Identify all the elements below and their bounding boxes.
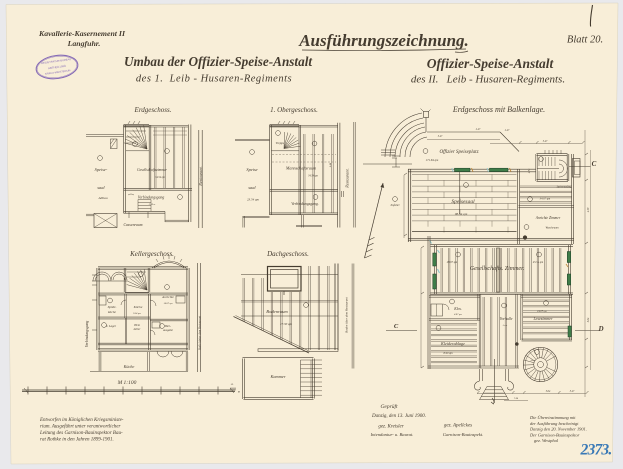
svg-text:Geprüft: Geprüft [380, 403, 398, 410]
svg-text:Kellergeschoss.: Kellergeschoss. [129, 250, 174, 258]
svg-text:Lesezimmer: Lesezimmer [532, 316, 553, 321]
svg-text:9.54 qm: 9.54 qm [133, 312, 141, 315]
svg-text:23.54 qm: 23.54 qm [247, 198, 260, 202]
svg-text:D: D [597, 325, 603, 333]
svg-text:Anrichte: Anrichte [161, 295, 174, 299]
svg-text:Küche: Küche [133, 305, 143, 309]
svg-text:Danzig den 20. November 1901.: Danzig den 20. November 1901. [529, 427, 587, 432]
svg-text:1. Obergeschoss.: 1. Obergeschoss. [270, 106, 318, 114]
svg-text:4.07 qm: 4.07 qm [454, 313, 462, 316]
svg-text:keller: keller [134, 327, 142, 331]
svg-text:Boden über dem Restaurant: Boden über dem Restaurant [345, 297, 349, 333]
svg-text:Garnison-Bauinspekt.: Garnison-Bauinspekt. [443, 432, 483, 437]
svg-text:Kammer: Kammer [269, 374, 285, 379]
svg-text:Restaurant.: Restaurant. [345, 168, 350, 188]
svg-text:2.47: 2.47 [505, 129, 510, 132]
svg-text:Altbau: Altbau [97, 196, 107, 200]
svg-text:Vorhalle: Vorhalle [500, 317, 513, 321]
svg-text:Cassenraum: Cassenraum [124, 223, 143, 227]
svg-text:5.47: 5.47 [438, 135, 443, 138]
svg-text:Danzig, den 13. Juni 1900.: Danzig, den 13. Juni 1900. [371, 414, 426, 419]
svg-text:Speise: Speise [246, 167, 257, 172]
svg-text:gez. Kreisler: gez. Kreisler [378, 425, 403, 430]
svg-text:28.07 qm: 28.07 qm [447, 261, 457, 264]
svg-text:der Ausführung bescheinigt: der Ausführung bescheinigt [530, 421, 579, 426]
svg-text:Ausführungszeichnung.: Ausführungszeichnung. [298, 31, 469, 50]
svg-text:5.47: 5.47 [543, 140, 548, 143]
svg-text:Verbindungsgang.: Verbindungsgang. [291, 202, 319, 206]
svg-text:10.: 10. [231, 383, 234, 386]
svg-text:Küche: Küche [123, 364, 135, 369]
svg-text:M 1:100: M 1:100 [117, 380, 137, 386]
svg-text:3.64: 3.64 [587, 317, 590, 322]
svg-text:des 1. Leib - Husaren-Regimen: des 1. Leib - Husaren-Regiments [136, 74, 292, 85]
svg-text:Offizier-Speise-Anstalt: Offizier-Speise-Anstalt [427, 56, 555, 71]
svg-text:34.54 qm: 34.54 qm [308, 175, 318, 178]
svg-text:Kavallerie-Kasernement II: Kavallerie-Kasernement II [38, 29, 126, 38]
svg-text:Erdgeschoss mit Balkenlage.: Erdgeschoss mit Balkenlage. [452, 105, 545, 114]
svg-text:8.90 qm: 8.90 qm [443, 352, 452, 355]
svg-text:Leitung des Garnison-Bauinspek: Leitung des Garnison-Bauinspektor Bau- [39, 431, 123, 436]
svg-text:Verbindungsgang: Verbindungsgang [85, 321, 89, 348]
svg-text:Halle hinter dem Restaurant: Halle hinter dem Restaurant [198, 316, 202, 351]
svg-text:Anrichte Zimmer: Anrichte Zimmer [535, 216, 561, 220]
svg-text:Restaurant.: Restaurant. [198, 166, 203, 186]
svg-text:4. Lager: 4. Lager [106, 324, 117, 328]
svg-text:17.30 qm: 17.30 qm [280, 322, 293, 326]
svg-text:saal: saal [248, 185, 256, 190]
svg-text:Gesellschafts. Zimmer.: Gesellschafts. Zimmer. [470, 265, 525, 272]
svg-text:14.07 qm: 14.07 qm [164, 302, 173, 305]
svg-text:Umbau der Offizier-Speise-Anst: Umbau der Offizier-Speise-Anstalt [124, 54, 312, 69]
svg-text:Der Garnison-Bauinspektor: Der Garnison-Bauinspektor [529, 432, 580, 437]
svg-text:Waschraum: Waschraum [545, 227, 558, 230]
svg-text:45.54 qm: 45.54 qm [533, 261, 543, 264]
svg-text:des II. Leib - Husaren-Regi: des II. Leib - Husaren-Regiments. [411, 74, 565, 86]
svg-text:saal: saal [97, 185, 105, 190]
svg-text:gez. Westphal: gez. Westphal [534, 438, 559, 443]
svg-text:Speisenaufzug: Speisenaufzug [557, 186, 573, 189]
svg-text:ausgabe: ausgabe [163, 328, 174, 332]
svg-text:Offizier Speiseplatz: Offizier Speiseplatz [439, 150, 478, 155]
svg-text:Speisesaal: Speisesaal [451, 199, 475, 205]
svg-text:Die Übereinstimmung mit: Die Übereinstimmung mit [529, 415, 576, 420]
svg-text:Zufahrt: Zufahrt [390, 203, 399, 207]
svg-text:Mannschaftsraum: Mannschaftsraum [285, 166, 316, 171]
svg-text:5.64: 5.64 [546, 390, 551, 393]
svg-text:gez. Apellckes: gez. Apellckes [444, 424, 472, 429]
svg-text:küche: küche [108, 310, 116, 314]
svg-text:C: C [592, 160, 597, 168]
svg-text:Bodenraum: Bodenraum [266, 309, 288, 314]
svg-text:Spühl-: Spühl- [108, 305, 117, 309]
svg-text:Entworfen im Königlichen Krieg: Entworfen im Königlichen Kriegsministe- [39, 418, 124, 423]
svg-text:Langfuhr.: Langfuhr. [67, 39, 101, 48]
svg-text:98.34 qm: 98.34 qm [455, 212, 468, 216]
svg-text:Intendantur- u. Baurat.: Intendantur- u. Baurat. [370, 432, 414, 437]
svg-text:Verbindungsgang: Verbindungsgang [138, 196, 165, 200]
svg-text:Dachgeschoss.: Dachgeschoss. [266, 250, 309, 258]
svg-text:Kleiderablage: Kleiderablage [440, 341, 465, 346]
svg-text:rium. Ausgeführt unter verant: rium. Ausgeführt unter verantwortlicher [40, 425, 121, 430]
svg-text:3.47: 3.47 [570, 390, 575, 393]
svg-text:2.47: 2.47 [476, 128, 481, 131]
svg-text:34.07 qm: 34.07 qm [540, 198, 550, 201]
svg-text:171.84 qm: 171.84 qm [426, 158, 440, 162]
svg-text:Treppe: Treppe [276, 141, 285, 145]
svg-text:Arra: Arra [502, 324, 508, 327]
svg-text:2373.: 2373. [580, 442, 612, 459]
svg-text:4.50: 4.50 [587, 207, 590, 212]
svg-text:24.07 qm: 24.07 qm [537, 310, 547, 313]
svg-text:Gesellschaftszimmer: Gesellschaftszimmer [137, 168, 167, 172]
svg-text:Ausg.: Ausg. [529, 359, 536, 362]
svg-text:rat Rothke in den Jahren 1899-: rat Rothke in den Jahren 1899-1901. [40, 438, 114, 443]
svg-text:4.74: 4.74 [528, 168, 531, 173]
svg-text:34.54 qm: 34.54 qm [155, 176, 165, 179]
svg-text:Klos.: Klos. [453, 307, 462, 311]
svg-text:Speise-: Speise- [95, 167, 108, 172]
svg-text:Erdgeschoss.: Erdgeschoss. [134, 106, 172, 114]
svg-text:C: C [394, 323, 399, 330]
svg-text:Blatt 20.: Blatt 20. [567, 35, 603, 46]
